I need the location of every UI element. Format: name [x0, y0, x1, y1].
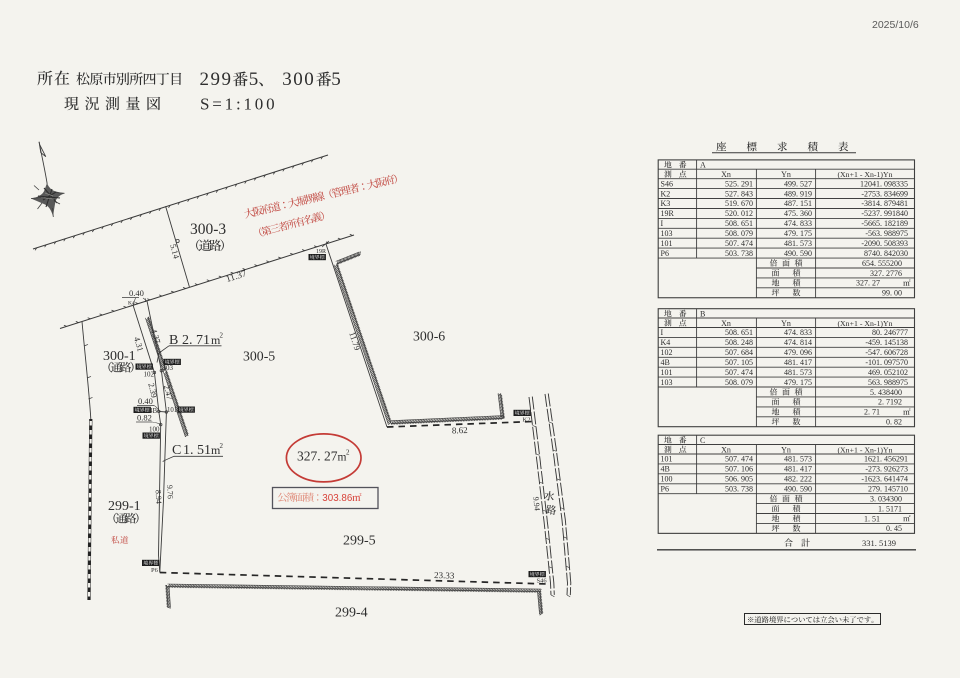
svg-text:469. 052102: 469. 052102: [868, 368, 908, 377]
svg-text:P6: P6: [661, 249, 669, 258]
svg-text:Yn: Yn: [781, 319, 791, 328]
svg-text:S46: S46: [537, 578, 548, 585]
svg-text:S46: S46: [661, 179, 673, 188]
svg-text:-563. 988975: -563. 988975: [865, 229, 908, 238]
svg-text:Xn: Xn: [721, 319, 731, 328]
svg-text:299-5: 299-5: [343, 534, 376, 549]
svg-text:-5237. 991840: -5237. 991840: [861, 209, 908, 218]
svg-text:1. 51: 1. 51: [864, 514, 880, 523]
svg-text:102: 102: [144, 371, 155, 379]
svg-text:-3814. 879481: -3814. 879481: [861, 199, 908, 208]
svg-text:475. 360: 475. 360: [784, 209, 812, 218]
svg-text:23.33: 23.33: [434, 570, 455, 581]
svg-text:474. 833: 474. 833: [784, 219, 812, 228]
svg-text:0.40: 0.40: [129, 288, 144, 298]
svg-text:481. 417: 481. 417: [784, 465, 812, 474]
svg-text:-2090. 508393: -2090. 508393: [861, 239, 908, 248]
svg-text:481. 573: 481. 573: [784, 239, 812, 248]
svg-text:K2: K2: [523, 417, 531, 424]
svg-text:3. 034300: 3. 034300: [870, 495, 902, 504]
svg-text:I: I: [145, 298, 147, 304]
svg-text:520. 012: 520. 012: [725, 209, 753, 218]
svg-text:0. 45: 0. 45: [886, 524, 902, 533]
svg-text:B: B: [700, 310, 705, 319]
svg-text:K3: K3: [661, 199, 671, 208]
svg-text:2: 2: [220, 442, 224, 450]
svg-text:503. 738: 503. 738: [725, 485, 753, 494]
svg-text:(Xn+1 - Xn-1)Yn: (Xn+1 - Xn-1)Yn: [837, 319, 892, 328]
svg-text:99. 00: 99. 00: [882, 289, 902, 298]
svg-text:103: 103: [661, 229, 673, 238]
svg-text:331. 5139: 331. 5139: [862, 538, 896, 548]
svg-text:-101. 097570: -101. 097570: [865, 358, 908, 367]
svg-text:300-1: 300-1: [103, 349, 136, 364]
svg-text:481. 417: 481. 417: [784, 358, 812, 367]
svg-text:2: 2: [220, 332, 224, 340]
svg-text:(Xn+1 - Xn-1)Yn: (Xn+1 - Xn-1)Yn: [837, 170, 892, 179]
svg-text:1621. 456291: 1621. 456291: [864, 455, 908, 464]
svg-text:101: 101: [661, 239, 673, 248]
svg-text:5: 5: [331, 69, 341, 90]
svg-text:2. 7192: 2. 7192: [878, 398, 902, 407]
svg-text:-273. 926273: -273. 926273: [865, 465, 908, 474]
svg-text:100: 100: [661, 475, 673, 484]
svg-text:499. 527: 499. 527: [784, 179, 812, 188]
svg-text:Yn: Yn: [781, 445, 791, 454]
svg-text:654. 555200: 654. 555200: [862, 259, 902, 268]
svg-text:300-6: 300-6: [413, 329, 445, 344]
svg-text:5: 5: [249, 69, 259, 90]
svg-text:80. 246777: 80. 246777: [872, 328, 908, 337]
svg-text:K4: K4: [128, 301, 135, 307]
svg-text:563. 988975: 563. 988975: [868, 378, 908, 387]
svg-text:525. 291: 525. 291: [725, 179, 753, 188]
svg-text:487. 151: 487. 151: [784, 199, 812, 208]
svg-text:C: C: [700, 436, 705, 445]
svg-text:1. 5171: 1. 5171: [878, 504, 902, 513]
svg-text:Yn: Yn: [781, 170, 791, 179]
svg-text:I: I: [661, 328, 664, 337]
svg-text:4B: 4B: [661, 465, 670, 474]
svg-text:481. 573: 481. 573: [784, 368, 812, 377]
svg-text:-1623. 641474: -1623. 641474: [861, 475, 908, 484]
svg-text:8.94: 8.94: [154, 490, 164, 504]
svg-text:5. 438400: 5. 438400: [870, 388, 902, 397]
svg-text:507. 474: 507. 474: [725, 368, 753, 377]
svg-text:507. 106: 507. 106: [725, 465, 753, 474]
svg-text:508. 079: 508. 079: [725, 229, 753, 238]
svg-text:489. 919: 489. 919: [784, 189, 812, 198]
svg-text:8.62: 8.62: [452, 425, 468, 436]
svg-text:508. 248: 508. 248: [725, 338, 753, 347]
svg-text:300-5: 300-5: [243, 349, 275, 364]
svg-text:4B: 4B: [661, 358, 670, 367]
svg-text:101: 101: [661, 455, 673, 464]
svg-text:101: 101: [167, 407, 177, 414]
svg-text:S=1:100: S=1:100: [200, 95, 277, 114]
svg-text:481. 573: 481. 573: [784, 455, 812, 464]
svg-text:A: A: [700, 161, 706, 170]
svg-text:479. 096: 479. 096: [784, 348, 812, 357]
svg-text:299: 299: [200, 69, 233, 90]
svg-text:8740. 842030: 8740. 842030: [864, 249, 908, 258]
svg-text:507. 474: 507. 474: [725, 239, 753, 248]
svg-text:303.86: 303.86: [322, 493, 353, 504]
svg-text:2025/10/6: 2025/10/6: [872, 19, 919, 31]
svg-text:103: 103: [661, 378, 673, 387]
svg-text:K2: K2: [661, 189, 671, 198]
svg-text:Xn: Xn: [721, 170, 731, 179]
svg-text:-5665. 182189: -5665. 182189: [861, 219, 908, 228]
svg-text:300: 300: [282, 69, 315, 90]
svg-text:507. 684: 507. 684: [725, 348, 753, 357]
svg-text:519. 670: 519. 670: [725, 199, 753, 208]
svg-text:0. 82: 0. 82: [886, 418, 902, 427]
svg-text:508. 651: 508. 651: [725, 219, 753, 228]
svg-text:490. 590: 490. 590: [784, 249, 812, 258]
svg-text:P6: P6: [661, 485, 669, 494]
svg-text:527. 843: 527. 843: [725, 189, 753, 198]
svg-text:9.94: 9.94: [531, 496, 541, 511]
svg-text:300-3: 300-3: [190, 221, 226, 238]
svg-text:19R: 19R: [661, 209, 675, 218]
svg-text:479. 175: 479. 175: [784, 378, 812, 387]
svg-text:479. 175: 479. 175: [784, 229, 812, 238]
svg-text:Xn: Xn: [721, 445, 731, 454]
svg-text:490. 590: 490. 590: [784, 485, 812, 494]
svg-text:P6: P6: [151, 567, 159, 574]
svg-text:508. 079: 508. 079: [725, 378, 753, 387]
svg-text:2. 71: 2. 71: [864, 408, 880, 417]
svg-text:-2753. 834699: -2753. 834699: [861, 189, 908, 198]
svg-text:103: 103: [163, 364, 174, 372]
svg-text:508. 651: 508. 651: [725, 328, 753, 337]
svg-text:I: I: [661, 219, 664, 228]
svg-text:2: 2: [346, 449, 350, 457]
svg-text:K4: K4: [661, 338, 671, 347]
svg-text:327. 27: 327. 27: [856, 279, 880, 288]
svg-text:474. 833: 474. 833: [784, 328, 812, 337]
svg-text:507. 474: 507. 474: [725, 455, 753, 464]
svg-text:102: 102: [661, 348, 673, 357]
svg-text:0.40: 0.40: [138, 396, 153, 406]
svg-text:299-4: 299-4: [335, 606, 368, 621]
svg-text:503. 738: 503. 738: [725, 249, 753, 258]
svg-text:507. 105: 507. 105: [725, 358, 753, 367]
svg-text:482. 222: 482. 222: [784, 475, 812, 484]
svg-text:12041. 098335: 12041. 098335: [860, 179, 908, 188]
svg-text:506. 905: 506. 905: [725, 475, 753, 484]
svg-text:9.76: 9.76: [165, 485, 175, 499]
svg-text:100: 100: [149, 426, 160, 434]
svg-text:-547. 606728: -547. 606728: [865, 348, 908, 357]
svg-text:(Xn+1 - Xn-1)Yn: (Xn+1 - Xn-1)Yn: [837, 445, 892, 454]
svg-text:0.82: 0.82: [137, 413, 152, 423]
svg-text:-459. 145138: -459. 145138: [865, 338, 908, 347]
svg-text:299-1: 299-1: [108, 499, 141, 514]
svg-text:474. 814: 474. 814: [784, 338, 812, 347]
svg-text:279. 145710: 279. 145710: [868, 485, 908, 494]
svg-text:101: 101: [661, 368, 673, 377]
svg-text:327. 2776: 327. 2776: [870, 269, 902, 278]
svg-text:327. 27: 327. 27: [297, 449, 338, 464]
